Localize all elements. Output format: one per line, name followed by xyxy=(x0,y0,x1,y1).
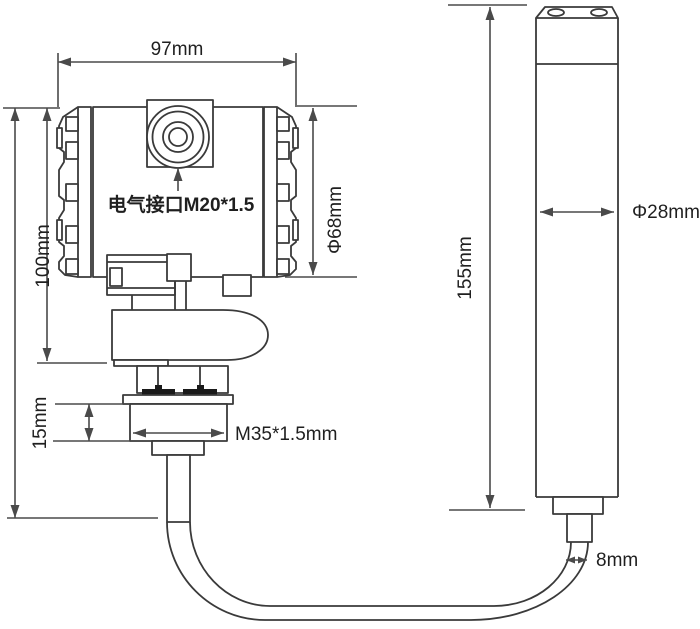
label-mounting-thread-m35: M35*1.5mm xyxy=(235,424,337,445)
transmitter-drawing xyxy=(57,100,588,620)
label-thread-length-15mm: 15mm xyxy=(30,397,51,450)
label-height-100mm: 100mm xyxy=(33,224,54,287)
probe-body xyxy=(536,18,618,497)
electrical-connector xyxy=(147,100,213,168)
hex-nut-section xyxy=(137,366,228,393)
technical-drawing-canvas: 97mm 100mm 15mm Φ68mm M35*1.5mm 电气接口M20*… xyxy=(0,0,700,629)
label-electrical-port-m20: 电气接口M20*1.5 xyxy=(108,193,255,216)
dimension-15mm xyxy=(53,404,132,441)
dimension-lines xyxy=(3,5,614,560)
collar xyxy=(152,441,204,455)
dimension-97mm xyxy=(58,53,296,107)
label-width-97mm: 97mm xyxy=(151,39,204,60)
sensor-housing xyxy=(112,310,268,360)
housing-right-cap xyxy=(264,107,298,277)
label-housing-diameter-68mm: Φ68mm xyxy=(325,186,346,254)
cable-stem xyxy=(167,455,190,522)
label-cable-diameter-8mm: 8mm xyxy=(596,550,638,571)
probe-bottom-step xyxy=(553,497,603,514)
mounting-flange xyxy=(123,395,233,404)
probe-drawing xyxy=(536,7,618,542)
terminal-boss xyxy=(167,254,191,281)
housing-left-cap xyxy=(57,107,91,277)
label-probe-length-155mm: 155mm xyxy=(455,236,476,299)
thread-section-m35 xyxy=(130,404,227,441)
right-bracket xyxy=(223,275,251,296)
cable xyxy=(167,522,588,620)
label-probe-diameter-28mm: Φ28mm xyxy=(632,202,700,223)
probe-cable-gland xyxy=(567,514,592,542)
